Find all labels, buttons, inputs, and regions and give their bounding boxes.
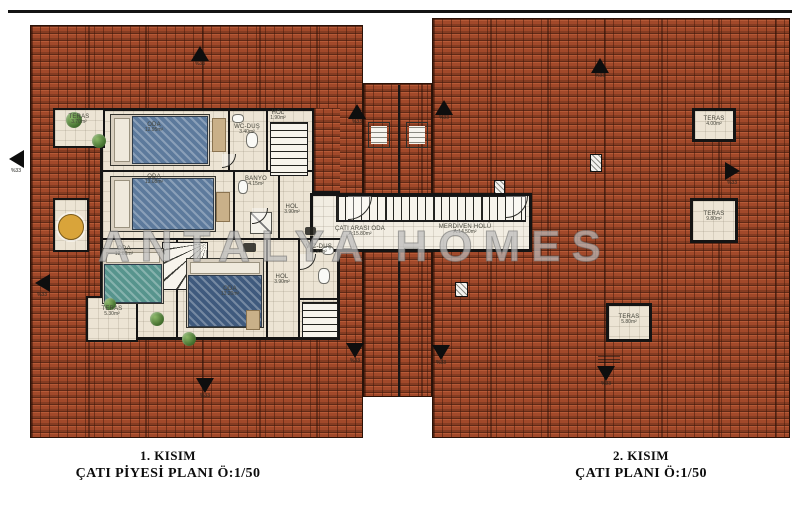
chimney	[590, 154, 602, 172]
room-label-merdiven-holu: MERDİVEN HOLÜA:14.50m²	[418, 224, 512, 236]
roof-note-box	[406, 122, 428, 148]
roof-slope-arrow: %33	[432, 100, 456, 121]
wardrobe	[246, 310, 260, 330]
plan-top-edge-line	[8, 10, 792, 13]
room-label-hol2: HOL3.90m²	[264, 274, 300, 286]
room-label-cati-arasi: ÇATI ARASI ODAA:15.80m²	[316, 226, 404, 238]
roof-slope-arrow: %33	[188, 46, 212, 67]
stamp-mark	[305, 227, 316, 235]
roof-slope-arrow: %33	[429, 345, 453, 366]
chimney	[455, 282, 468, 297]
room-label-oda4: ODA13.20m²	[208, 286, 252, 298]
wardrobe	[216, 192, 230, 222]
sink	[232, 114, 244, 123]
room-label-oda3: ODA12.60m²	[104, 246, 144, 258]
wardrobe	[212, 118, 226, 152]
staircase-upper	[270, 122, 308, 176]
party-wall-line-bottom	[398, 252, 400, 397]
room-label-oda1: ODA12.95m²	[132, 122, 176, 134]
wall	[266, 240, 268, 340]
plant	[150, 312, 164, 326]
room-label-teras-r1: TERAS4.00m²	[692, 116, 736, 128]
room-label-teras-bl: TERAS5.30m²	[86, 306, 138, 318]
round-table	[58, 214, 84, 240]
room-label-banyo: BANYO4.15m²	[234, 176, 278, 188]
floorplan-sheet: %33 %33 %33 %33 %33 %33 %33 %33 %33 %33 …	[0, 0, 800, 508]
roof-slope-arrow: %33	[4, 150, 28, 174]
toilet	[318, 268, 330, 284]
caption-section-1: 1. KISIM ÇATI PİYESİ PLANI Ö:1/50	[48, 448, 288, 482]
plant	[92, 134, 106, 148]
caption-section-2: 2. KISIM ÇATI PLANI Ö:1/50	[518, 448, 764, 482]
tiny-roof-note	[598, 356, 620, 363]
plant	[182, 332, 196, 346]
room-label-oda2: ODA13.08m²	[132, 174, 176, 186]
caption-section-1-title: 1. KISIM	[48, 448, 288, 464]
stamp-mark	[243, 243, 256, 252]
roof-slope-arrow: %33	[720, 162, 744, 186]
room-label-teras-tl: TERAS3.70m²	[53, 114, 105, 126]
room-label-hol1: HOL1.90m²	[262, 110, 294, 122]
roof-note-box	[368, 122, 390, 148]
caption-section-1-subtitle: ÇATI PİYESİ PLANI Ö:1/50	[48, 466, 288, 482]
roof-slope-arrow: %33	[193, 378, 217, 399]
staircase-lower	[302, 302, 338, 338]
roof-patch	[312, 108, 340, 193]
roof-slope-arrow: %33	[345, 104, 369, 125]
wall	[100, 238, 340, 240]
chimney	[494, 180, 505, 194]
room-label-wc2: WC-DUŞ3.30m²	[298, 244, 340, 256]
roof-slope-arrow: %33	[588, 58, 612, 79]
room-label-wc1: WC-DUŞ3.40m²	[228, 124, 266, 136]
roof-slope-arrow: %33	[343, 343, 367, 364]
roof-slope-arrow: %33	[594, 366, 618, 387]
caption-section-2-title: 2. KISIM	[518, 448, 764, 464]
wall	[298, 298, 340, 300]
room-label-teras-r2: TERAS9.80m²	[690, 211, 738, 223]
room-label-teras-r3: TERAS5.80m²	[606, 314, 652, 326]
room-label-hol-mid: HOL3.90m²	[272, 204, 312, 216]
roof-slope-arrow: %33	[30, 274, 54, 298]
caption-section-2-subtitle: ÇATI PLANI Ö:1/50	[518, 466, 764, 482]
party-wall-line-top	[398, 85, 400, 193]
